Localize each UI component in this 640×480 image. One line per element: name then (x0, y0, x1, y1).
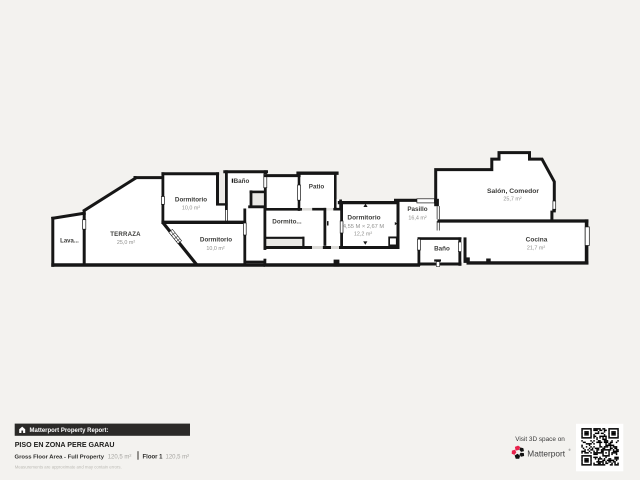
svg-text:16,4 m²: 16,4 m² (408, 216, 426, 222)
svg-text:Matterport: Matterport (527, 448, 566, 458)
svg-text:12,2 m²: 12,2 m² (354, 232, 372, 238)
svg-text:Baño: Baño (434, 246, 450, 253)
svg-text:25,0 m²: 25,0 m² (117, 240, 135, 246)
svg-text:Dormitorio: Dormitorio (347, 215, 380, 222)
svg-text:Matterport Property Report:: Matterport Property Report: (30, 428, 109, 434)
svg-text:10,0 m²: 10,0 m² (206, 246, 224, 252)
svg-text:Salón, Comedor: Salón, Comedor (487, 188, 539, 195)
svg-text:25,7 m²: 25,7 m² (503, 196, 521, 202)
svg-text:Gross Floor Area - Full Proper: Gross Floor Area - Full Property (15, 454, 105, 460)
svg-text:Baño: Baño (234, 178, 250, 185)
svg-text:PISO EN ZONA PERE GARAU: PISO EN ZONA PERE GARAU (15, 441, 115, 449)
svg-text:10,0 m²: 10,0 m² (182, 206, 200, 212)
svg-text:Dormito...: Dormito... (272, 219, 302, 226)
svg-text:Cocina: Cocina (526, 236, 548, 243)
svg-text:21,7 m²: 21,7 m² (527, 246, 545, 252)
svg-text:Pasillo: Pasillo (407, 206, 427, 213)
svg-text:Dormitorio: Dormitorio (200, 236, 232, 243)
svg-text:120,5 m²: 120,5 m² (108, 454, 132, 460)
svg-text:TERRAZA: TERRAZA (110, 231, 141, 238)
svg-text:4,55 M × 2,67 M: 4,55 M × 2,67 M (343, 224, 385, 230)
svg-text:Floor 1: Floor 1 (143, 454, 164, 460)
svg-text:Measurements are approximate a: Measurements are approximate and may con… (15, 464, 122, 469)
svg-text:Visit 3D space on: Visit 3D space on (515, 436, 565, 443)
svg-text:Lava...: Lava... (60, 239, 79, 245)
svg-text:120,5 m²: 120,5 m² (166, 454, 190, 460)
svg-text:Dormitorio: Dormitorio (175, 196, 207, 203)
svg-text:Patio: Patio (309, 184, 325, 191)
